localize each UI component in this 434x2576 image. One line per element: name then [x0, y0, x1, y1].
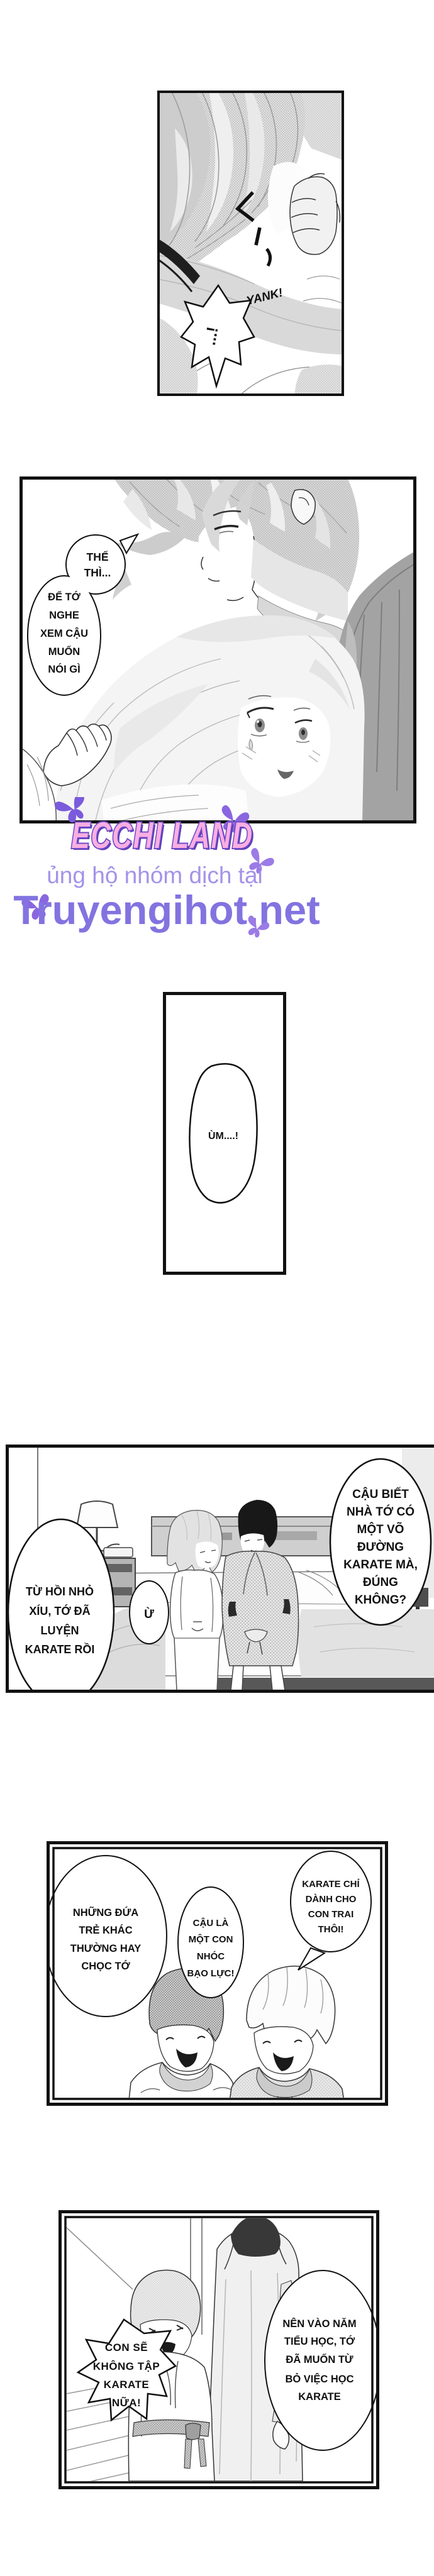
svg-text:KARATE: KARATE [298, 2391, 341, 2403]
svg-text:NÊN VÀO NĂM: NÊN VÀO NĂM [282, 2318, 356, 2330]
svg-text:CON SẼ: CON SẼ [105, 2341, 148, 2353]
svg-text:CẬU LÀ: CẬU LÀ [193, 1917, 229, 1929]
svg-text:DÀNH CHO: DÀNH CHO [306, 1894, 357, 1905]
svg-text:TRẺ KHÁC: TRẺ KHÁC [79, 1924, 132, 1936]
svg-text:BẠO LỰC!: BẠO LỰC! [187, 1968, 235, 1979]
svg-text:ÙM....!: ÙM....! [208, 1130, 238, 1142]
svg-text:CON TRAI: CON TRAI [308, 1909, 354, 1920]
svg-text:KHÔNG TẬP: KHÔNG TẬP [93, 2360, 160, 2372]
svg-text:ĐÃ MUỐN TỪ: ĐÃ MUỐN TỪ [286, 2353, 353, 2365]
svg-text:ĐƯỜNG: ĐƯỜNG [357, 1540, 404, 1554]
svg-text:LUYỆN: LUYỆN [40, 1624, 79, 1637]
svg-text:Ừ: Ừ [144, 1607, 154, 1621]
svg-text:...!: ...! [201, 326, 222, 347]
svg-text:XEM CẬU: XEM CẬU [40, 627, 88, 639]
svg-text:TIỂU HỌC, TỚ: TIỂU HỌC, TỚ [284, 2335, 355, 2347]
svg-text:ủng hộ nhóm dịch tại: ủng hộ nhóm dịch tại [47, 862, 263, 888]
svg-text:THÌ...: THÌ... [84, 566, 111, 579]
svg-text:THẾ: THẾ [87, 550, 109, 563]
svg-text:NGHE: NGHE [49, 610, 79, 621]
svg-text:CẬU BIẾT: CẬU BIẾT [352, 1487, 409, 1501]
svg-text:XÍU, TỚ ĐÃ: XÍU, TỚ ĐÃ [29, 1604, 90, 1617]
svg-text:BỎ VIỆC HỌC: BỎ VIỆC HỌC [285, 2373, 353, 2385]
svg-text:TỪ HỒI NHỎ: TỪ HỒI NHỎ [26, 1585, 94, 1598]
svg-text:KARATE RỒI: KARATE RỒI [25, 1643, 95, 1656]
svg-text:CHỌC TỚ: CHỌC TỚ [81, 1960, 130, 1972]
svg-text:KHÔNG?: KHÔNG? [355, 1593, 406, 1607]
svg-text:NHỮNG ĐỨA: NHỮNG ĐỨA [73, 1906, 138, 1918]
svg-text:ECCHI LAND: ECCHI LAND [71, 815, 253, 856]
svg-text:ĐỂ TỚ: ĐỂ TỚ [48, 591, 81, 603]
svg-text:NHÓC: NHÓC [197, 1951, 225, 1962]
svg-text:MỘT CON: MỘT CON [189, 1934, 233, 1945]
svg-text:NHÀ TỚ CÓ: NHÀ TỚ CÓ [347, 1505, 415, 1519]
svg-text:MỘT VÕ: MỘT VÕ [357, 1522, 404, 1536]
svg-text:Truyengihot.net: Truyengihot.net [13, 887, 320, 933]
svg-text:NỮA!: NỮA! [112, 2396, 141, 2409]
svg-text:KARATE CHỈ: KARATE CHỈ [302, 1879, 359, 1890]
svg-text:THÔI!: THÔI! [318, 1924, 344, 1935]
svg-text:KARATE: KARATE [104, 2379, 150, 2391]
svg-text:MUỐN: MUỐN [48, 645, 80, 658]
svg-text:THƯỜNG HAY: THƯỜNG HAY [70, 1942, 141, 1954]
svg-text:NÓI GÌ: NÓI GÌ [48, 663, 80, 675]
svg-text:ĐÚNG: ĐÚNG [363, 1575, 398, 1589]
svg-text:KARATE MÀ,: KARATE MÀ, [343, 1558, 418, 1571]
